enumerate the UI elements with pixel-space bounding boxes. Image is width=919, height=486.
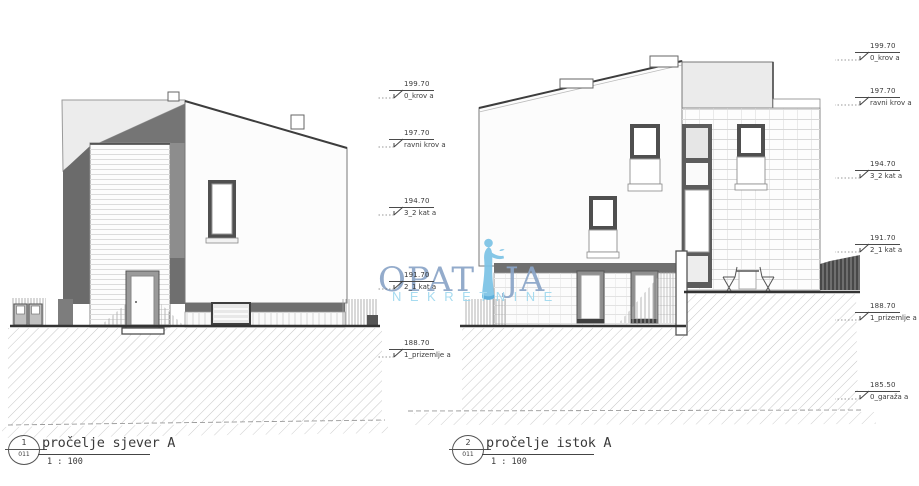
level-arrow-icon [841, 391, 871, 401]
wall-pier [58, 299, 73, 326]
roof-parapet-block [682, 62, 773, 108]
level-marker: 197.70 ravni krov a [389, 130, 446, 149]
level-arrow-icon [841, 312, 871, 322]
vent-window [212, 303, 250, 324]
detail-number: 2 [453, 436, 483, 449]
slatted-fence [820, 255, 860, 290]
detail-bubble: 1 011 [8, 435, 40, 465]
level-marker: 199.70 0_krov a [389, 81, 434, 100]
level-marker: 191.70 2_1 kat a [855, 235, 902, 254]
watermark-subtitle: NEKRETNINE [378, 289, 561, 304]
entrance-door [122, 271, 164, 334]
ground-subsoil-band [414, 412, 876, 425]
elevation-sheet: OPAT JA NEKRETNINE 199.70 0_krov a 197.7… [0, 0, 919, 486]
parapet-band [185, 303, 345, 312]
window [628, 124, 662, 191]
level-marker: 188.70 1_prizemlje a [855, 303, 917, 322]
chimney [560, 79, 593, 88]
level-marker: 185.50 0_garaža a [855, 382, 908, 401]
ground-hatch [8, 328, 382, 425]
drawing-scale: 1 : 100 [491, 457, 527, 467]
parapet-strip [773, 99, 820, 108]
level-arrow-icon [841, 97, 871, 107]
drawing-title: pročelje istok A [486, 435, 611, 451]
level-arrow-icon [375, 90, 405, 100]
detail-bubble: 2 011 [452, 435, 484, 465]
fence-post [367, 315, 378, 326]
ground-dashed-line [408, 410, 862, 411]
titleblock-north: 1 011 pročelje sjever A 1 : 100 [8, 433, 228, 473]
level-marker: 188.70 1_prizemlje a [389, 340, 451, 359]
chimney [650, 56, 678, 67]
north-elevation-drawing [2, 92, 388, 438]
chimney [291, 115, 304, 129]
level-marker: 191.70 2_1 kat a [389, 272, 436, 291]
level-marker: 194.70 3_2 kat a [389, 198, 436, 217]
window [735, 124, 767, 190]
title-underline [482, 454, 594, 455]
side-wall-shadow [63, 146, 90, 304]
door [577, 271, 604, 323]
window [206, 180, 238, 243]
sheet-number: 011 [453, 449, 483, 461]
level-marker: 194.70 3_2 kat a [855, 161, 902, 180]
level-arrow-icon [375, 207, 405, 217]
level-arrow-icon [375, 349, 405, 359]
titleblock-east: 2 011 pročelje istok A 1 : 100 [452, 433, 672, 473]
stair-hatch [658, 272, 678, 323]
level-marker: 197.70 ravni krov a [855, 88, 912, 107]
level-marker: 199.70 0_krov a [855, 43, 900, 62]
level-arrow-icon [375, 281, 405, 291]
window [587, 196, 619, 258]
level-arrow-icon [841, 244, 871, 254]
drawing-scale: 1 : 100 [47, 457, 83, 467]
level-arrow-icon [375, 139, 405, 149]
level-arrow-icon [841, 52, 871, 62]
drawing-title: pročelje sjever A [42, 435, 175, 451]
detail-number: 1 [9, 436, 39, 449]
chimney [168, 92, 179, 101]
sheet-number: 011 [9, 449, 39, 461]
title-underline [38, 454, 150, 455]
level-arrow-icon [841, 170, 871, 180]
